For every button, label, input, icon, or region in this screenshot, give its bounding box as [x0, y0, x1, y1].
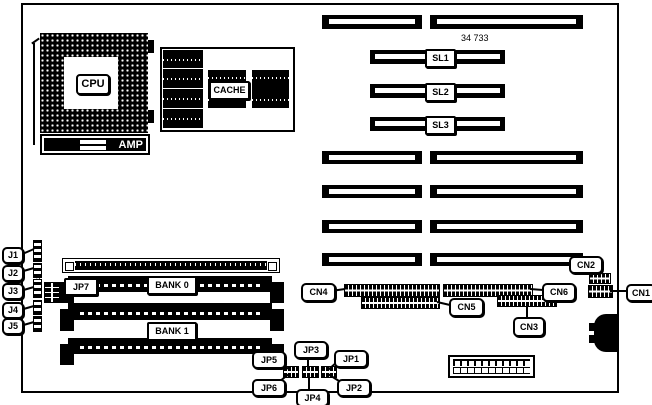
isa-slot-long-5: [430, 253, 583, 266]
jp7-pin4: 4: [57, 297, 61, 306]
cache-chip: [163, 69, 203, 88]
jp1-label: JP1: [334, 350, 368, 368]
din-notch: [589, 323, 595, 331]
din-notch: [589, 335, 595, 343]
simm-tab: [60, 309, 74, 331]
j2-label: J2: [2, 265, 24, 282]
cpu-socket-tab-bottom: [148, 110, 154, 123]
cn4-label: CN4: [301, 283, 336, 302]
part-number: 34 733: [461, 34, 489, 44]
isa-slot-short-5: [322, 253, 422, 266]
cache-chip: [252, 70, 289, 108]
j1-connector: [33, 240, 42, 262]
bank1-label: BANK 1: [147, 322, 197, 341]
cn3-label: CN3: [513, 317, 545, 337]
jp4-label: JP4: [296, 389, 329, 405]
simm-clip-right: [268, 262, 277, 271]
cn2-label: CN2: [569, 256, 603, 274]
motherboard-diagram: CPU AMP CACHE 34 733 SL1 SL2 SL3: [0, 0, 652, 405]
j2-connector: [33, 263, 42, 278]
j3-label: J3: [2, 283, 24, 300]
power-connector: [448, 355, 535, 378]
white-stripe: [80, 140, 106, 144]
cache-label: CACHE: [209, 81, 250, 100]
bank0-label: BANK 0: [147, 276, 197, 295]
sl2-label: SL2: [425, 83, 456, 102]
white-stripe: [80, 146, 106, 150]
simm-contacts-dash: [80, 312, 260, 315]
j3-connector: [33, 279, 42, 298]
j5-connector: [33, 316, 42, 332]
jp7-label: JP7: [64, 278, 98, 296]
simm-tab: [60, 344, 74, 365]
cpu-lever: [33, 43, 35, 145]
simm-tab: [270, 309, 284, 331]
j5-label: J5: [2, 318, 24, 335]
simm-bar-bank1a: [68, 303, 272, 320]
cn4-header: [344, 284, 440, 297]
isa-slot-short-3: [322, 185, 422, 198]
cn1-label: CN1: [626, 284, 652, 302]
isa-slot-long-2: [430, 151, 583, 164]
jumper-block-jp1-jp2: [321, 366, 337, 378]
simm-clip-left: [65, 262, 74, 271]
cpu-label: CPU: [76, 74, 110, 95]
jp6-label: JP6: [252, 379, 286, 397]
isa-slot-long-3: [430, 185, 583, 198]
isa-slot-short-2: [322, 151, 422, 164]
isa-slot-short-4: [322, 220, 422, 233]
cpu-socket-tab-top: [148, 40, 154, 53]
cache-chip: [163, 89, 203, 108]
simm-socket-top: [62, 258, 280, 273]
jp2-label: JP2: [337, 379, 371, 397]
simm-tab: [270, 282, 284, 303]
keyboard-din-connector: [594, 314, 618, 352]
cn2-header: [589, 273, 611, 284]
sl1-label: SL1: [425, 49, 456, 68]
isa-slot-long-1: [430, 15, 583, 29]
jumper-block-jp5-jp6: [283, 366, 299, 378]
sl3-label: SL3: [425, 116, 456, 135]
jp3-label: JP3: [294, 341, 328, 359]
cache-chip: [163, 109, 203, 128]
j1-label: J1: [2, 247, 24, 264]
isa-slot-long-4: [430, 220, 583, 233]
simm-socket-contacts: [75, 261, 267, 270]
cn1-header: [588, 285, 613, 298]
cn5-header: [361, 297, 440, 309]
cache-chip: [163, 50, 203, 68]
jp5-label: JP5: [252, 351, 286, 369]
amp-label: AMP: [119, 138, 143, 151]
simm-contacts-dash: [80, 346, 260, 349]
power-pins: [453, 359, 530, 366]
cn5-label: CN5: [449, 298, 484, 317]
j4-label: J4: [2, 302, 24, 319]
jumper-block-jp3-jp4: [302, 366, 319, 378]
power-holes: [453, 367, 530, 374]
cn6-label: CN6: [542, 283, 576, 302]
isa-slot-short-1: [322, 15, 422, 29]
j4-connector: [33, 300, 42, 315]
vrm-amp: AMP: [40, 134, 150, 155]
